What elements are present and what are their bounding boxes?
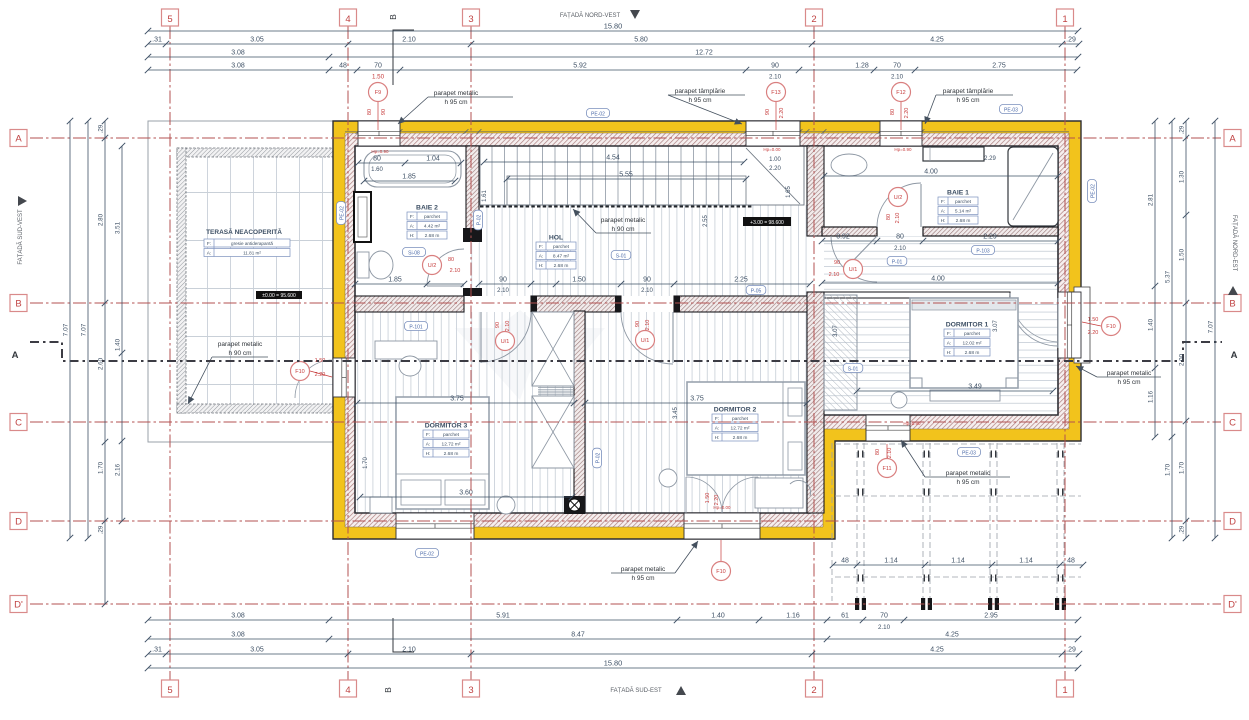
svg-text:80: 80 — [886, 214, 892, 220]
svg-text:1.60: 1.60 — [371, 167, 383, 173]
svg-text:2: 2 — [811, 685, 816, 696]
svg-text:3.08: 3.08 — [231, 613, 245, 620]
svg-text:PE-03: PE-03 — [962, 450, 976, 456]
svg-text:8.47: 8.47 — [571, 632, 585, 639]
svg-text:1.40: 1.40 — [115, 338, 122, 351]
svg-text:2.20: 2.20 — [714, 495, 720, 506]
svg-text:90: 90 — [771, 63, 779, 70]
svg-text:80: 80 — [890, 109, 896, 115]
svg-text:7.07: 7.07 — [63, 323, 70, 336]
svg-text:.29: .29 — [1179, 525, 1186, 534]
svg-text:2.20: 2.20 — [779, 108, 785, 119]
svg-text:12.72 m²: 12.72 m² — [731, 425, 750, 431]
svg-text:2.60: 2.60 — [98, 357, 105, 370]
svg-text:P-02: P-02 — [595, 453, 601, 464]
svg-text:parchet: parchet — [424, 214, 441, 220]
svg-text:48: 48 — [339, 63, 347, 70]
svg-text:.29: .29 — [1066, 647, 1076, 654]
svg-text:BAIE 2: BAIE 2 — [416, 205, 438, 212]
svg-text:FAȚADĂ NORD-EST: FAȚADĂ NORD-EST — [1231, 215, 1238, 272]
svg-text:h 95 cm: h 95 cm — [956, 479, 979, 486]
svg-text:TERASĂ NEACOPERITĂ: TERASĂ NEACOPERITĂ — [206, 227, 282, 236]
svg-text:.31: .31 — [152, 647, 162, 654]
svg-text:11.81 m²: 11.81 m² — [243, 251, 261, 256]
svg-text:h 95 cm: h 95 cm — [688, 97, 711, 104]
svg-text:parapet metalic: parapet metalic — [1107, 370, 1152, 377]
svg-text:4.42 m²: 4.42 m² — [424, 223, 441, 229]
svg-text:parapet metalic: parapet metalic — [601, 217, 646, 224]
svg-text:2.10: 2.10 — [645, 320, 651, 331]
svg-text:1.14: 1.14 — [951, 558, 965, 565]
svg-text:F:: F: — [941, 199, 945, 205]
svg-text:1.16: 1.16 — [1148, 390, 1155, 403]
svg-text:parapet metalic: parapet metalic — [434, 90, 479, 97]
svg-text:FAȚADĂ NORD-VEST: FAȚADĂ NORD-VEST — [560, 12, 621, 19]
svg-text:2.68 m: 2.68 m — [956, 218, 971, 224]
svg-text:80: 80 — [896, 234, 904, 241]
svg-text:PE-02: PE-02 — [420, 551, 434, 557]
svg-text:parchet: parchet — [732, 416, 749, 422]
svg-text:1.85: 1.85 — [388, 277, 402, 284]
svg-text:P-103: P-103 — [976, 248, 990, 254]
svg-text:2.10: 2.10 — [895, 213, 901, 224]
svg-text:3.07: 3.07 — [993, 320, 999, 332]
svg-text:parapet tâmplărie: parapet tâmplărie — [943, 88, 994, 95]
svg-text:1.04: 1.04 — [426, 156, 440, 163]
svg-text:H:: H: — [947, 350, 952, 356]
svg-text:F:: F: — [539, 244, 543, 250]
svg-text:3.45: 3.45 — [673, 407, 679, 419]
svg-text:2.10: 2.10 — [829, 272, 840, 278]
svg-text:2.16: 2.16 — [115, 463, 122, 476]
svg-text:12.72 m²: 12.72 m² — [442, 441, 461, 447]
svg-text:1.50: 1.50 — [372, 74, 385, 81]
svg-text:parapet tâmplărie: parapet tâmplărie — [675, 88, 726, 95]
svg-text:.31: .31 — [152, 37, 162, 44]
svg-text:2.68 m: 2.68 m — [444, 451, 459, 457]
svg-text:h 95 cm: h 95 cm — [444, 99, 467, 106]
svg-text:2.68 m: 2.68 m — [733, 435, 748, 441]
svg-text:3.08: 3.08 — [231, 50, 245, 57]
svg-text:B: B — [15, 299, 21, 310]
svg-text:1.14: 1.14 — [1019, 558, 1033, 565]
svg-text:A:: A: — [207, 251, 212, 257]
svg-text:12.02 m²: 12.02 m² — [963, 340, 982, 346]
svg-text:parapet metalic: parapet metalic — [218, 341, 263, 348]
svg-text:.29: .29 — [98, 124, 105, 133]
svg-text:3.08: 3.08 — [231, 632, 245, 639]
svg-text:1.00: 1.00 — [769, 157, 781, 163]
svg-text:70: 70 — [893, 63, 901, 70]
svg-text:1.50: 1.50 — [572, 277, 586, 284]
svg-text:DORMITOR 3: DORMITOR 3 — [425, 423, 468, 430]
svg-text:A:: A: — [539, 253, 544, 259]
svg-text:5.91: 5.91 — [496, 613, 510, 620]
svg-text:48: 48 — [1067, 558, 1075, 565]
svg-text:B: B — [1229, 299, 1235, 310]
svg-text:3.75: 3.75 — [450, 396, 464, 403]
svg-text:2.81: 2.81 — [1148, 193, 1155, 206]
svg-text:5.55: 5.55 — [619, 172, 633, 179]
svg-text:Si-08: Si-08 — [408, 250, 420, 256]
svg-text:90: 90 — [381, 109, 387, 115]
svg-text:H:: H: — [715, 435, 720, 441]
svg-text:80: 80 — [448, 257, 454, 263]
svg-text:70: 70 — [374, 63, 382, 70]
svg-text:1.70: 1.70 — [98, 461, 105, 474]
svg-text:Hp=0.90: Hp=0.90 — [894, 147, 912, 152]
svg-text:0.92: 0.92 — [836, 234, 850, 241]
svg-text:A:: A: — [426, 441, 431, 447]
svg-text:5.37: 5.37 — [1165, 270, 1172, 283]
svg-text:1.85: 1.85 — [402, 174, 416, 181]
svg-text:PE-02: PE-02 — [591, 111, 605, 117]
svg-text:2.75: 2.75 — [992, 63, 1006, 70]
svg-text:U/1: U/1 — [641, 338, 650, 344]
svg-text:1.16: 1.16 — [786, 613, 800, 620]
svg-text:2.10: 2.10 — [402, 647, 416, 654]
svg-text:2.00: 2.00 — [1179, 353, 1186, 366]
svg-text:PE-03: PE-03 — [1004, 107, 1018, 113]
svg-text:C: C — [1229, 418, 1236, 429]
svg-text:1.30: 1.30 — [1179, 170, 1186, 183]
svg-text:A:: A: — [715, 425, 720, 431]
svg-text:4: 4 — [345, 14, 350, 25]
svg-text:2.68 m: 2.68 m — [425, 233, 440, 239]
svg-text:8.47 m²: 8.47 m² — [553, 253, 570, 259]
svg-text:2.20: 2.20 — [904, 108, 910, 119]
svg-text:B: B — [388, 14, 398, 20]
svg-text:+3.00 = 98.600: +3.00 = 98.600 — [750, 220, 784, 226]
svg-text:gresie antiderapantă: gresie antiderapantă — [231, 241, 273, 246]
svg-text:F11: F11 — [882, 466, 891, 472]
svg-text:U/1: U/1 — [849, 267, 858, 273]
svg-text:C: C — [15, 418, 22, 429]
svg-text:3.07: 3.07 — [833, 325, 839, 337]
svg-text:P-101: P-101 — [409, 324, 423, 330]
svg-text:parapet metalic: parapet metalic — [946, 470, 991, 477]
svg-text:5.92: 5.92 — [573, 63, 587, 70]
svg-text:F:: F: — [410, 214, 414, 220]
svg-text:1.40: 1.40 — [1148, 318, 1155, 331]
svg-text:3.05: 3.05 — [250, 37, 264, 44]
svg-text:HOL: HOL — [549, 235, 563, 242]
svg-text:.29: .29 — [1066, 37, 1076, 44]
svg-text:parchet: parchet — [553, 244, 570, 250]
svg-text:1.28: 1.28 — [855, 63, 869, 70]
svg-text:.29: .29 — [98, 525, 105, 534]
svg-text:h 95 cm: h 95 cm — [956, 97, 979, 104]
svg-text:H:: H: — [941, 218, 946, 224]
svg-text:A: A — [15, 134, 22, 145]
svg-text:2.10: 2.10 — [891, 74, 904, 81]
svg-text:P-05: P-05 — [751, 288, 762, 294]
svg-text:A: A — [12, 350, 19, 361]
svg-text:BAIE 1: BAIE 1 — [947, 190, 969, 197]
svg-text:2.20: 2.20 — [769, 166, 781, 172]
svg-text:H:: H: — [539, 263, 544, 269]
svg-text:1.70: 1.70 — [1179, 461, 1186, 474]
svg-text:2.29: 2.29 — [984, 156, 996, 162]
svg-text:D': D' — [1228, 600, 1237, 611]
svg-text:2.55: 2.55 — [703, 215, 709, 227]
svg-text:2.10: 2.10 — [878, 624, 891, 631]
svg-text:2: 2 — [811, 14, 816, 25]
svg-text:4.00: 4.00 — [924, 169, 938, 176]
svg-text:4.25: 4.25 — [930, 37, 944, 44]
svg-text:90: 90 — [765, 109, 771, 115]
svg-text:1.61: 1.61 — [482, 190, 488, 202]
svg-text:DORMITOR 1: DORMITOR 1 — [946, 322, 989, 329]
svg-text:5: 5 — [167, 14, 172, 25]
svg-text:H:: H: — [426, 451, 431, 457]
svg-text:±0.00 = 95.600: ±0.00 = 95.600 — [262, 293, 296, 299]
svg-text:2.29: 2.29 — [983, 234, 997, 241]
svg-text:1: 1 — [1062, 14, 1067, 25]
svg-text:F:: F: — [715, 416, 719, 422]
svg-text:90: 90 — [643, 277, 651, 284]
svg-text:4.25: 4.25 — [945, 632, 959, 639]
svg-text:3.49: 3.49 — [968, 384, 982, 391]
svg-text:U/2: U/2 — [894, 195, 903, 201]
svg-text:5.14 m²: 5.14 m² — [955, 208, 972, 214]
svg-text:1.50: 1.50 — [705, 493, 711, 504]
svg-text:U/1: U/1 — [501, 339, 510, 345]
svg-text:7.07: 7.07 — [81, 323, 88, 336]
svg-text:U/2: U/2 — [428, 263, 437, 269]
svg-text:F10: F10 — [295, 369, 304, 375]
svg-text:80: 80 — [875, 449, 881, 455]
svg-text:P-01: P-01 — [892, 259, 903, 265]
svg-text:D': D' — [14, 600, 23, 611]
svg-text:Hp=0.00: Hp=0.00 — [763, 147, 781, 152]
svg-text:F:: F: — [207, 241, 211, 247]
svg-text:2.80: 2.80 — [98, 213, 105, 226]
svg-text:90: 90 — [495, 322, 501, 328]
svg-text:3: 3 — [468, 685, 473, 696]
svg-text:3.05: 3.05 — [250, 647, 264, 654]
svg-text:12.72: 12.72 — [695, 50, 713, 57]
svg-text:Hp=0.00: Hp=0.00 — [713, 505, 731, 510]
svg-text:parchet: parchet — [964, 331, 981, 337]
svg-text:2.10: 2.10 — [887, 448, 893, 459]
svg-text:PE-02: PE-02 — [339, 206, 345, 220]
svg-text:80: 80 — [373, 156, 381, 163]
svg-text:F:: F: — [426, 432, 430, 438]
svg-text:H:: H: — [410, 233, 415, 239]
svg-text:15.80: 15.80 — [604, 659, 623, 668]
svg-text:parapet metalic: parapet metalic — [621, 566, 666, 573]
svg-text:F10: F10 — [716, 569, 725, 575]
svg-text:A:: A: — [947, 340, 952, 346]
svg-text:4.25: 4.25 — [930, 647, 944, 654]
svg-text:F12: F12 — [896, 90, 905, 96]
svg-text:h 95 cm: h 95 cm — [1117, 379, 1140, 386]
svg-text:7.07: 7.07 — [1208, 320, 1215, 333]
svg-text:2.68 m: 2.68 m — [965, 350, 980, 356]
svg-text:3.51: 3.51 — [115, 221, 122, 234]
svg-text:D: D — [1229, 517, 1236, 528]
svg-text:4.54: 4.54 — [606, 155, 620, 162]
svg-text:2.10: 2.10 — [497, 288, 509, 294]
svg-text:.29: .29 — [1179, 125, 1186, 134]
svg-text:S-01: S-01 — [616, 253, 627, 259]
svg-text:PE-02: PE-02 — [1090, 184, 1096, 198]
svg-text:90: 90 — [499, 277, 507, 284]
svg-text:70: 70 — [880, 613, 888, 620]
svg-text:1.50: 1.50 — [1088, 317, 1099, 323]
svg-text:2.68 m: 2.68 m — [554, 263, 569, 269]
svg-text:5.80: 5.80 — [634, 37, 648, 44]
svg-text:S-01: S-01 — [848, 366, 859, 372]
svg-text:15.80: 15.80 — [604, 22, 623, 31]
svg-text:1.14: 1.14 — [884, 558, 898, 565]
svg-text:1.50: 1.50 — [1179, 248, 1186, 261]
svg-text:A:: A: — [941, 208, 946, 214]
svg-text:5: 5 — [167, 685, 172, 696]
svg-text:B: B — [383, 687, 393, 693]
svg-text:2.20: 2.20 — [1088, 330, 1099, 336]
svg-text:F10: F10 — [1106, 324, 1115, 330]
svg-text:3.08: 3.08 — [231, 63, 245, 70]
svg-text:48: 48 — [841, 558, 849, 565]
svg-text:90: 90 — [834, 260, 840, 266]
svg-text:A:: A: — [410, 223, 415, 229]
svg-text:61: 61 — [841, 613, 849, 620]
svg-text:DORMITOR 2: DORMITOR 2 — [714, 407, 757, 414]
svg-text:P-02: P-02 — [476, 215, 482, 226]
svg-text:4: 4 — [345, 685, 350, 696]
svg-text:F9: F9 — [375, 90, 381, 96]
svg-text:h 95 cm: h 95 cm — [631, 575, 654, 582]
svg-text:h 90 cm: h 90 cm — [611, 226, 634, 233]
svg-text:1.65: 1.65 — [786, 186, 792, 198]
svg-text:1: 1 — [1062, 685, 1067, 696]
svg-text:Hp=0.90: Hp=0.90 — [371, 149, 389, 154]
svg-text:1.70: 1.70 — [363, 457, 369, 469]
svg-text:2.10: 2.10 — [894, 246, 906, 252]
svg-text:1.40: 1.40 — [711, 613, 725, 620]
svg-text:F:: F: — [947, 331, 951, 337]
svg-text:2.25: 2.25 — [734, 277, 748, 284]
svg-text:A: A — [1229, 134, 1236, 145]
svg-text:2.10: 2.10 — [769, 74, 782, 81]
svg-text:parchet: parchet — [955, 199, 972, 205]
svg-text:80: 80 — [367, 109, 373, 115]
svg-text:FAȚADĂ SUD-VEST: FAȚADĂ SUD-VEST — [17, 209, 24, 265]
svg-text:3.75: 3.75 — [690, 396, 704, 403]
svg-text:2.95: 2.95 — [984, 613, 998, 620]
svg-text:A: A — [1231, 350, 1238, 361]
svg-text:1.70: 1.70 — [1165, 463, 1172, 476]
svg-text:2.20: 2.20 — [315, 372, 326, 378]
svg-text:2.10: 2.10 — [450, 268, 461, 274]
svg-text:2.10: 2.10 — [402, 37, 416, 44]
svg-text:h 90 cm: h 90 cm — [228, 350, 251, 357]
svg-text:2.10: 2.10 — [505, 321, 511, 332]
svg-text:D: D — [15, 517, 22, 528]
svg-text:4.00: 4.00 — [931, 276, 945, 283]
svg-text:2.10: 2.10 — [641, 288, 653, 294]
svg-text:parchet: parchet — [443, 432, 460, 438]
svg-text:FAȚADĂ SUD-EST: FAȚADĂ SUD-EST — [610, 687, 662, 694]
svg-text:F13: F13 — [771, 90, 780, 96]
svg-text:3: 3 — [468, 14, 473, 25]
svg-text:90: 90 — [635, 321, 641, 327]
